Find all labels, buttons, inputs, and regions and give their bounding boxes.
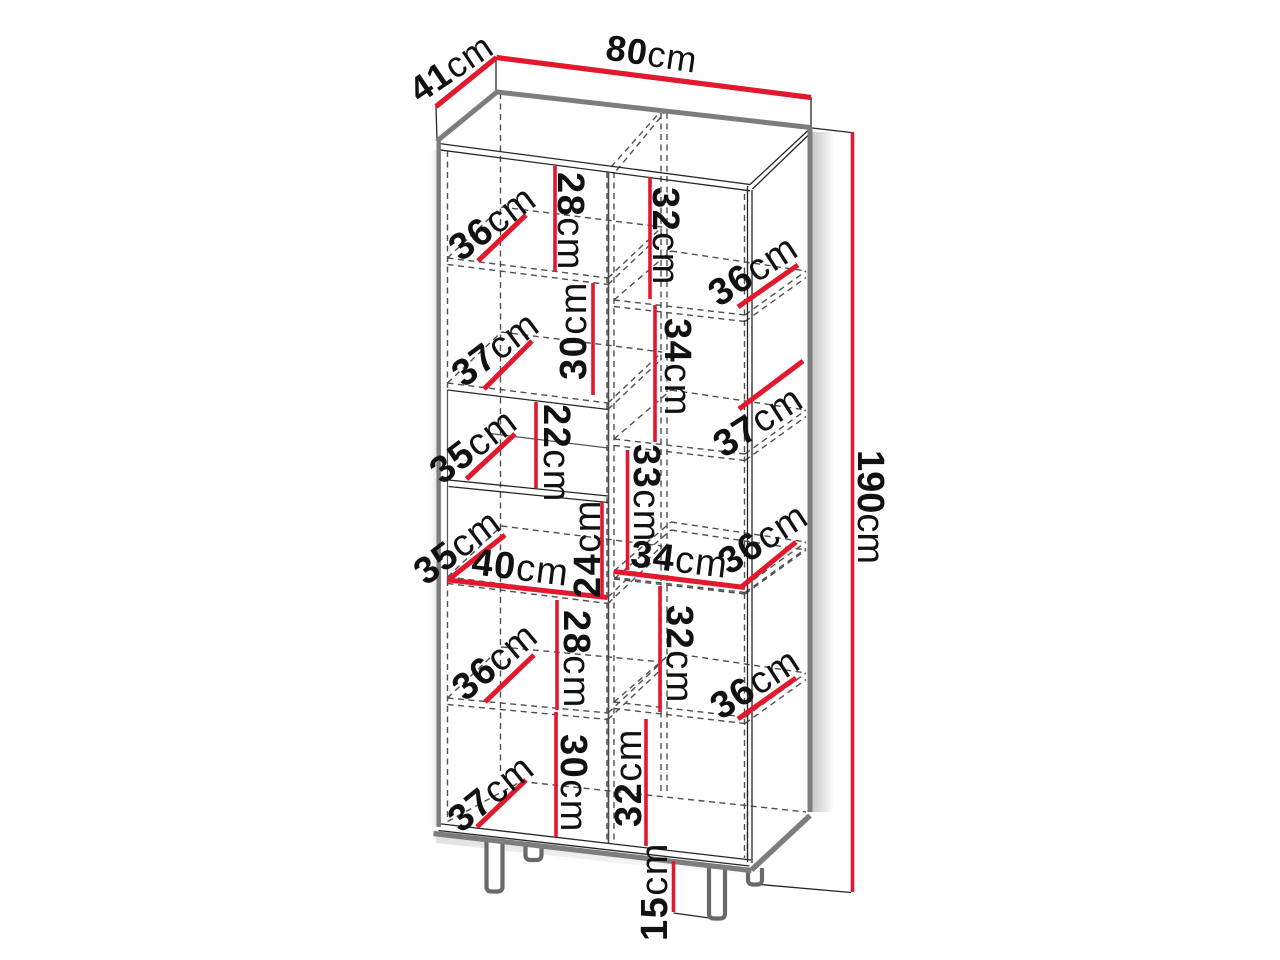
svg-text:30cm: 30cm: [552, 734, 594, 833]
svg-text:15cm: 15cm: [634, 842, 676, 941]
svg-text:28cm: 28cm: [555, 610, 597, 709]
svg-text:32cm: 32cm: [658, 605, 700, 704]
svg-text:24cm: 24cm: [567, 499, 609, 598]
svg-text:28cm: 28cm: [549, 172, 591, 271]
svg-text:32cm: 32cm: [644, 187, 686, 286]
svg-text:34cm: 34cm: [656, 318, 698, 417]
svg-text:32cm: 32cm: [608, 728, 650, 827]
svg-text:22cm: 22cm: [535, 404, 577, 503]
svg-text:33cm: 33cm: [625, 444, 667, 543]
svg-text:30cm: 30cm: [553, 281, 595, 380]
svg-text:190cm: 190cm: [849, 450, 891, 564]
